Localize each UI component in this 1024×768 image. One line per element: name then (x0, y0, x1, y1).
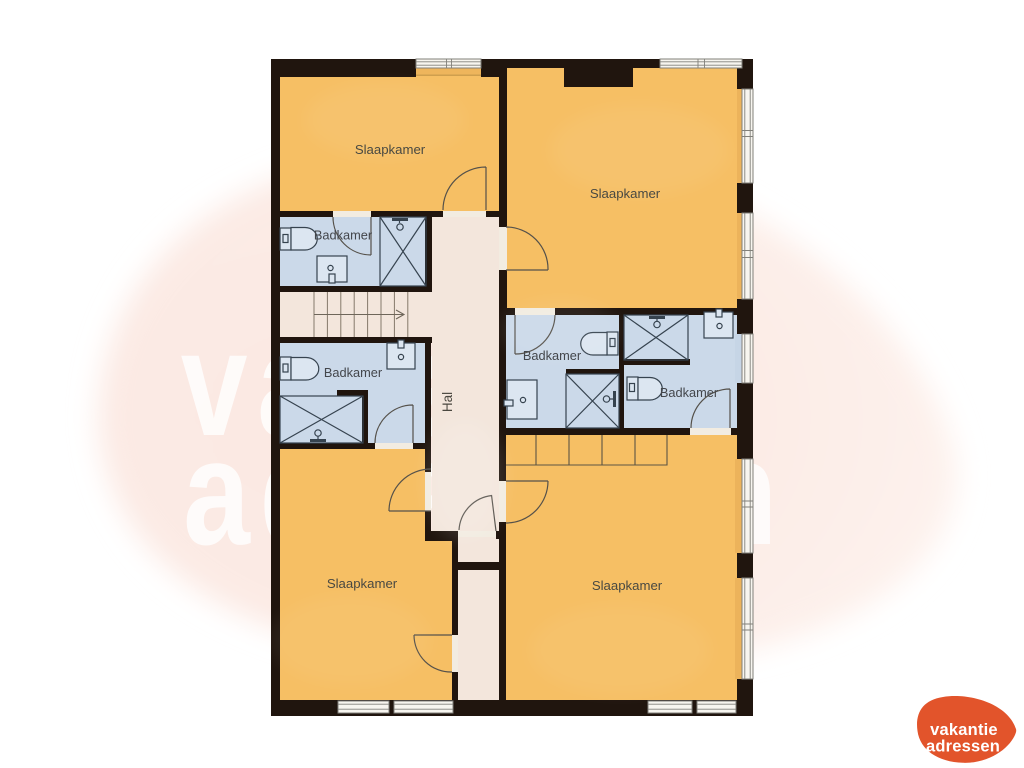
svg-text:Badkamer: Badkamer (660, 385, 719, 400)
svg-text:Badkamer: Badkamer (523, 348, 582, 363)
svg-text:Slaapkamer: Slaapkamer (355, 142, 426, 157)
svg-text:Slaapkamer: Slaapkamer (327, 576, 398, 591)
svg-text:Badkamer: Badkamer (324, 365, 383, 380)
svg-text:Slaapkamer: Slaapkamer (590, 186, 661, 201)
svg-text:Slaapkamer: Slaapkamer (592, 578, 663, 593)
svg-text:Hal: Hal (440, 392, 455, 412)
svg-text:Badkamer: Badkamer (314, 228, 373, 243)
svg-text:adressen: adressen (926, 738, 1000, 756)
svg-text:vakantie: vakantie (930, 721, 998, 739)
